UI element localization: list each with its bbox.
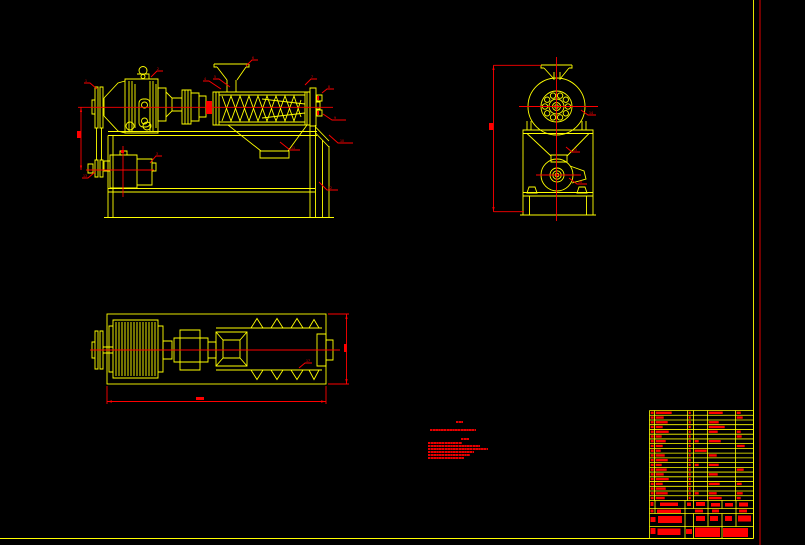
red-text-mark xyxy=(696,502,705,506)
leader-label: 10 xyxy=(340,139,344,143)
leader-line xyxy=(299,363,312,368)
dim-arrow xyxy=(492,65,494,70)
parts-table-cell-text xyxy=(651,416,654,418)
parts-table-cell-text xyxy=(656,483,663,485)
parts-table-cell-text xyxy=(656,449,661,451)
parts-table-cell-text xyxy=(709,454,717,456)
leader-label: 12 xyxy=(328,186,332,190)
machine-frame xyxy=(104,125,334,218)
parts-table-cell-text xyxy=(656,478,669,480)
parts-table-cell-text xyxy=(695,464,699,466)
leader-label: 6 xyxy=(252,56,254,60)
leader-label: 17 xyxy=(306,359,310,363)
leader-label: 1 xyxy=(85,79,87,83)
parts-table-cell-text xyxy=(695,449,707,451)
leader-label: 15 xyxy=(573,148,577,152)
dim-arrow xyxy=(80,108,82,113)
front-view xyxy=(78,64,334,218)
leader-line xyxy=(151,71,163,77)
leader-line xyxy=(322,89,334,93)
dim-arrow xyxy=(345,314,347,319)
parts-table-cell-text xyxy=(689,431,691,433)
leader-label: 13 xyxy=(83,174,87,178)
parts-table-cell-text xyxy=(656,440,666,442)
parts-table-cell-text xyxy=(709,497,722,499)
parts-table-cell-text xyxy=(651,473,654,475)
parts-table-cell-text xyxy=(689,468,691,470)
parts-table-cell-text xyxy=(689,445,691,447)
plan-centerline-dims xyxy=(90,314,349,404)
parts-table-cell-text xyxy=(737,435,742,437)
plan-thrust-bearing xyxy=(216,332,247,366)
parts-table-cell-text xyxy=(709,431,718,433)
cad-canvas: 1234567891011121314151617 xyxy=(0,0,805,545)
red-text-mark xyxy=(651,528,656,534)
red-text-mark xyxy=(651,502,654,506)
red-text-mark xyxy=(687,503,691,507)
parts-table-cell-text xyxy=(709,421,719,423)
red-text-mark xyxy=(196,397,204,400)
parts-table-cell-text xyxy=(651,449,654,451)
parts-table-cell-text xyxy=(651,483,654,485)
parts-table-cell-text xyxy=(651,421,654,423)
red-text-mark xyxy=(317,111,319,115)
red-text-mark xyxy=(686,529,692,534)
red-text-mark xyxy=(651,510,654,513)
parts-table-cell-text xyxy=(689,426,691,428)
red-text-mark xyxy=(651,517,656,522)
generated-annotations: 1234567891011121314151617 xyxy=(77,56,754,537)
parts-table-cell-text xyxy=(656,426,663,428)
parts-table-cell-text xyxy=(689,435,691,437)
parts-table-cell-text xyxy=(656,416,664,418)
gearbox-cap-circle-inner xyxy=(141,75,145,79)
parts-table-cell-text xyxy=(709,426,725,428)
parts-table-cell-text xyxy=(689,464,691,466)
parts-table-cell-text xyxy=(651,426,654,428)
parts-table-cell-text xyxy=(651,478,654,480)
red-text-mark xyxy=(658,516,682,523)
red-text-mark xyxy=(739,503,748,507)
parts-table-cell-text xyxy=(651,497,654,499)
leader-label: 11 xyxy=(291,146,295,150)
parts-table-cell-text xyxy=(689,497,691,499)
parts-table-cell-text xyxy=(656,487,666,489)
leader-label: 14 xyxy=(589,111,593,115)
parts-table-cell-text xyxy=(651,431,654,433)
parts-table-cell-text xyxy=(695,492,699,494)
sheet-border-yellow xyxy=(0,0,754,539)
parts-table-cell-text xyxy=(689,454,691,456)
parts-table-cell-text xyxy=(737,416,743,418)
parts-table-cell-text xyxy=(695,440,699,442)
side-view xyxy=(492,57,598,221)
leader-label: 8 xyxy=(328,85,330,89)
parts-table-cell-text xyxy=(656,412,672,414)
sheet-border xyxy=(0,0,760,545)
parts-table-cell-text xyxy=(651,412,654,414)
parts-table-cell-text xyxy=(651,468,654,470)
parts-table-cell-text xyxy=(651,440,654,442)
parts-table-cell-text xyxy=(656,468,667,470)
parts-table-cell-text xyxy=(651,464,654,466)
press-barrel xyxy=(213,92,310,125)
red-text-mark xyxy=(660,503,678,507)
leader-line xyxy=(246,60,258,66)
parts-table-cell-text xyxy=(689,483,691,485)
belt-pulley xyxy=(88,87,103,177)
parts-table-cell-text xyxy=(656,445,663,447)
parts-table-cell-text xyxy=(651,487,654,489)
red-text-mark xyxy=(712,510,719,513)
red-text-mark xyxy=(711,503,720,507)
red-text-mark xyxy=(344,344,347,352)
parts-table-cell-text xyxy=(656,459,668,461)
parts-table-cell-text xyxy=(709,464,719,466)
red-text-mark xyxy=(317,96,319,100)
leader-label: 4 xyxy=(204,77,206,81)
leader-line xyxy=(203,81,221,89)
parts-table-cell-text xyxy=(709,412,723,414)
parts-table-cell-text xyxy=(656,435,662,437)
electric-motor xyxy=(104,151,156,188)
cake-chute xyxy=(228,125,307,158)
parts-table-cell-text xyxy=(737,445,745,447)
leader-label: 2 xyxy=(157,67,159,71)
parts-table-cell-text xyxy=(709,492,717,494)
parts-table-cell-text xyxy=(689,416,691,418)
gearbox-cap-circle xyxy=(139,67,147,75)
parts-table-cell-text xyxy=(656,497,665,499)
red-text-mark xyxy=(658,529,681,536)
red-text-mark xyxy=(739,510,747,513)
parts-table-cell-text xyxy=(689,478,691,480)
plan-motor xyxy=(109,320,163,378)
plan-barrel-cage xyxy=(216,319,333,380)
parts-table-cell-text xyxy=(689,412,691,414)
red-text-mark xyxy=(695,528,720,538)
red-text-mark xyxy=(657,510,681,514)
red-text-mark xyxy=(710,516,718,521)
parts-table-cell-text xyxy=(737,412,741,414)
parts-table-cell-text xyxy=(656,492,668,494)
parts-table-cell-text xyxy=(737,497,741,499)
parts-table-cell-text xyxy=(709,483,720,485)
parts-table-cell-text xyxy=(689,487,691,489)
parts-table-cell-text xyxy=(651,459,654,461)
parts-table-cell-text xyxy=(651,454,654,456)
red-text-mark xyxy=(77,131,81,138)
parts-table-cell-text xyxy=(651,492,654,494)
cad-drawing-sheet: 1234567891011121314151617 xyxy=(0,0,805,545)
red-text-mark xyxy=(738,516,751,522)
parts-table-cell-text xyxy=(709,473,718,475)
gearbox-foot-circle xyxy=(126,122,134,130)
dim-arrow xyxy=(107,400,112,402)
red-text-mark xyxy=(695,510,703,513)
parts-table-cell-text xyxy=(689,421,691,423)
parts-table-cell-text xyxy=(656,454,665,456)
parts-table-cell-text xyxy=(656,421,668,423)
red-text-mark xyxy=(725,516,732,521)
dim-arrow xyxy=(80,166,82,171)
parts-table-cell-text xyxy=(709,440,721,442)
top-view xyxy=(90,314,349,404)
parts-table-cell-text xyxy=(651,435,654,437)
shaft-coupling xyxy=(158,88,206,124)
parts-table-cell-text xyxy=(656,473,664,475)
dim-arrow xyxy=(321,400,326,402)
parts-table-cell-text xyxy=(689,492,691,494)
leader-line xyxy=(305,79,317,85)
parts-table-cell-text xyxy=(737,468,744,470)
red-text-mark xyxy=(489,123,493,130)
leader-label: 5 xyxy=(214,75,216,79)
parts-table-cell-text xyxy=(689,449,691,451)
red-text-mark xyxy=(725,503,733,507)
front-centerlines xyxy=(78,107,333,197)
red-text-mark xyxy=(696,516,705,521)
red-text-mark xyxy=(121,150,124,153)
parts-table-cell-text xyxy=(689,440,691,442)
parts-table-cell-text xyxy=(651,445,654,447)
leader-label: 9 xyxy=(334,116,336,120)
parts-table-cell-text xyxy=(689,459,691,461)
parts-table-cell-text xyxy=(689,473,691,475)
leader-label: 16 xyxy=(578,180,582,184)
dim-arrow xyxy=(345,379,347,384)
red-text-mark xyxy=(206,101,212,114)
dim-arrow xyxy=(492,207,494,212)
leader-label: 7 xyxy=(311,75,313,79)
parts-table-cell-text xyxy=(737,483,742,485)
parts-table-cell-text xyxy=(656,431,669,433)
parts-table-cell-text xyxy=(656,464,662,466)
leader-label: 3 xyxy=(156,152,158,156)
red-text-mark xyxy=(723,528,748,537)
parts-table-cell-text xyxy=(737,492,743,494)
parts-table-cell-text xyxy=(737,431,741,433)
